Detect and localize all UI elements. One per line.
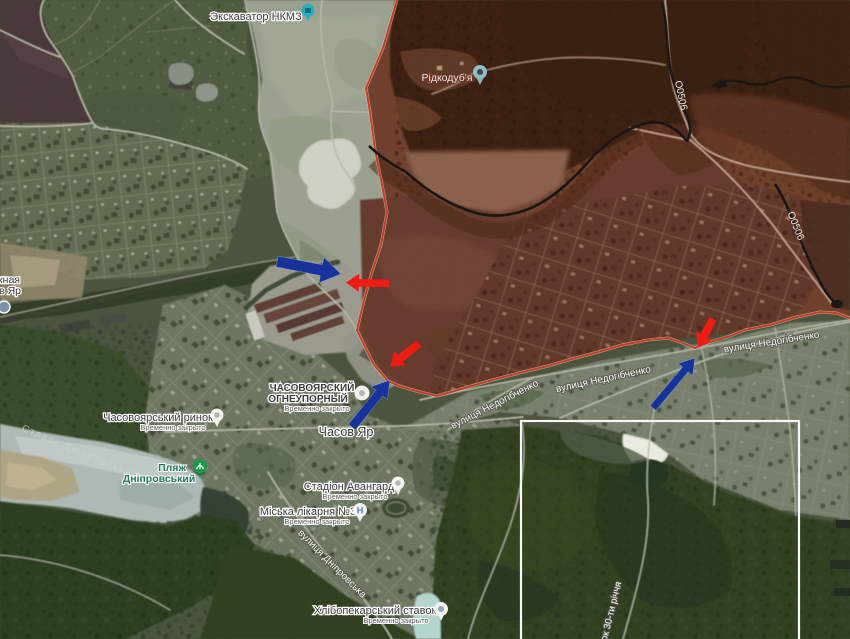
svg-text:Временно закрыто: Временно закрыто [284, 517, 349, 526]
svg-text:Экскаватор НКМЗ: Экскаватор НКМЗ [210, 11, 302, 23]
svg-text:Рідкодуб'я: Рідкодуб'я [422, 72, 473, 84]
svg-text:Временно закрыто: Временно закрыто [363, 616, 428, 625]
svg-text:H: H [357, 506, 364, 516]
svg-text:Временно закрыто: Временно закрыто [284, 404, 349, 413]
svg-text:Временно закрыто: Временно закрыто [140, 423, 205, 432]
svg-text:в Яр: в Яр [0, 285, 21, 297]
svg-text:ЧАСОВОЯРСКИЙ: ЧАСОВОЯРСКИЙ [270, 381, 355, 394]
svg-text:Часов Яр: Часов Яр [319, 425, 374, 439]
svg-text:Временно закрыто: Временно закрыто [322, 492, 387, 501]
svg-text:Дніпровський: Дніпровський [123, 473, 196, 485]
